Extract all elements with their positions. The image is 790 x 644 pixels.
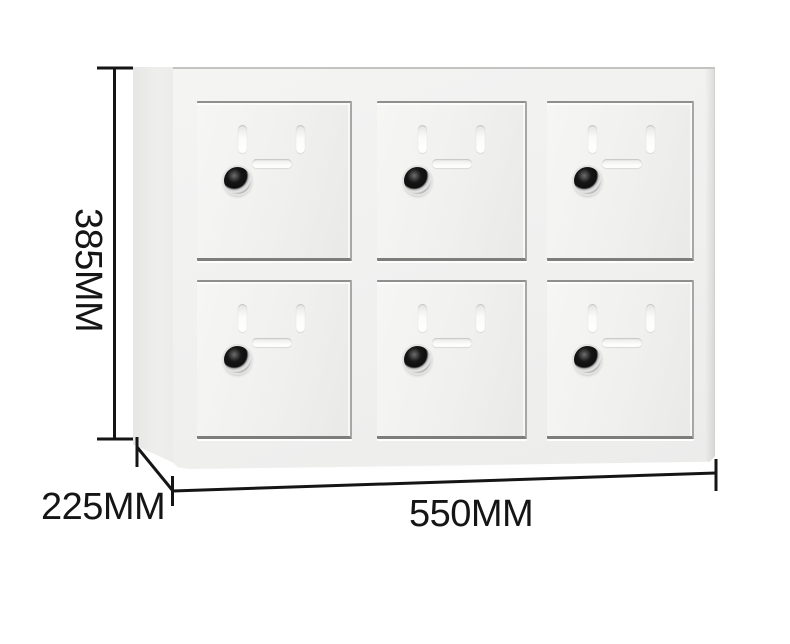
width-dimension-label: 550MM [409, 494, 533, 534]
width-dimension-line [173, 473, 717, 491]
depth-dimension-line [137, 447, 173, 491]
height-dimension-label: 385MM [68, 208, 108, 324]
dimension-lines [0, 0, 790, 644]
depth-dimension-label: 225MM [41, 487, 165, 527]
product-dimension-image: 385MM 225MM 550MM [0, 0, 790, 644]
